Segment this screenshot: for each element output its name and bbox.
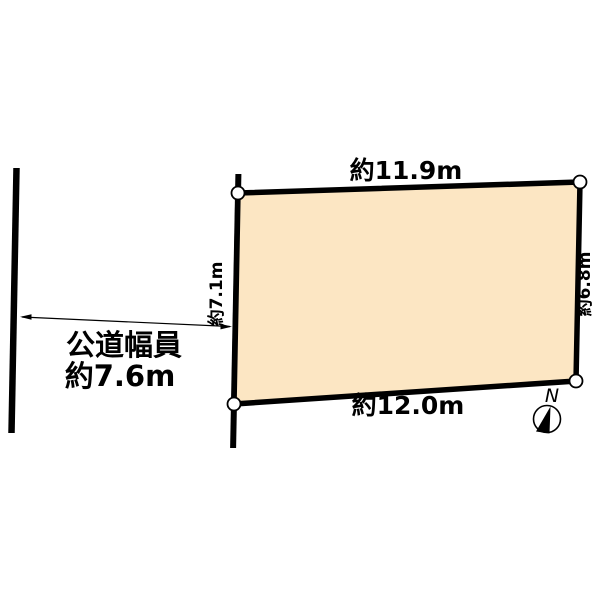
corner-marker-bottom-left [228,398,241,411]
compass: N [534,385,561,434]
corner-marker-top-left [232,187,245,200]
compass-north-label: N [545,385,559,407]
dimension-right: 約6.8m [574,252,595,317]
road-width-arrow-line [22,317,230,327]
road-width-label-line1: 公道幅員 [66,328,182,362]
parcel: 約11.9m 約12.0m 約7.1m 約6.8m [206,156,595,448]
dimension-left: 約7.1m [206,262,227,327]
road [12,168,17,433]
road-width-arrowhead-left [20,314,32,319]
dimension-top: 約11.9m [350,156,463,185]
road-width-dimension: 公道幅員 約7.6m [20,314,232,393]
road-width-label-line2: 約7.6m [65,359,176,393]
land-plot-diagram: 公道幅員 約7.6m 約11.9m 約12.0m 約7.1m 約6.8m N [0,0,600,600]
plot-svg: 公道幅員 約7.6m 約11.9m 約12.0m 約7.1m 約6.8m N [0,0,600,600]
road-edge-line [12,168,17,433]
parcel-polygon [234,182,580,404]
corner-marker-top-right [574,176,587,189]
dimension-bottom: 約12.0m [352,391,465,420]
corner-marker-bottom-right [570,375,583,388]
